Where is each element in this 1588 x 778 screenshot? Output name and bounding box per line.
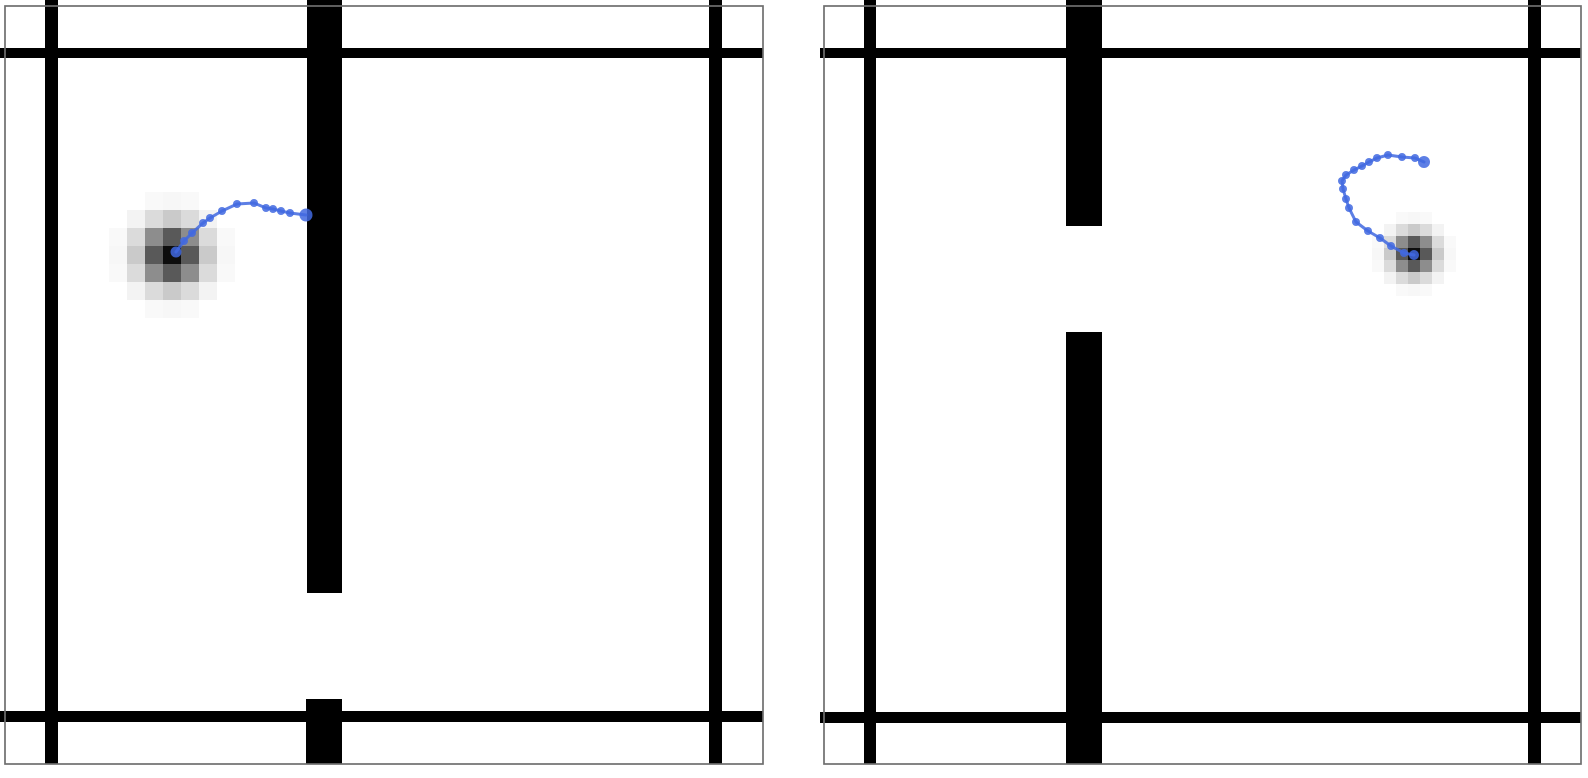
heat-cell [1420,248,1432,260]
maze-figure [0,0,1588,778]
right-wall [709,0,722,764]
trajectory-dot [269,205,277,213]
heat-cell [1444,248,1456,260]
heat-cell [1408,212,1420,224]
trajectory-dot [300,209,313,222]
trajectory-dot [180,237,188,245]
trajectory-dot [1418,156,1430,168]
heat-cell [109,264,127,282]
heat-cell [1420,236,1432,248]
heat-cell [145,282,163,300]
maze-panel-left-frame [5,6,763,764]
heat-cell [181,210,199,228]
heat-cell [1384,224,1396,236]
heat-cell [199,228,217,246]
trajectory-dot [1342,195,1350,203]
heat-cell [1444,236,1456,248]
heat-cell [163,228,181,246]
trajectory-dot [1350,166,1358,174]
trajectory-dot [218,207,226,215]
heat-cell [1396,212,1408,224]
trajectory-dot [1365,158,1373,166]
heat-cell [1408,272,1420,284]
trajectory-dot [1373,154,1381,162]
heat-cell [1408,224,1420,236]
heat-cell [1408,236,1420,248]
trajectory-dot [1338,177,1346,185]
heat-cell [127,246,145,264]
heat-cell [217,246,235,264]
top-wall [820,48,1581,58]
heat-cell [1432,236,1444,248]
heat-cell [1420,272,1432,284]
heat-cell [1396,236,1408,248]
heat-cell [199,246,217,264]
center-wall [307,0,342,593]
maze-panel-right [820,0,1581,764]
trajectory-dot [1339,185,1347,193]
heat-cell [181,264,199,282]
trajectory-dot [1411,154,1419,162]
heat-cell [1372,260,1384,272]
figure-svg [0,0,1588,778]
heat-cell [1432,248,1444,260]
heat-cell [181,300,199,318]
heat-cell [1372,248,1384,260]
trajectory-dot [1352,218,1360,226]
trajectory-dot [1345,204,1353,212]
center-wall-stub [306,699,342,764]
heat-cell [181,282,199,300]
heat-cell [145,228,163,246]
heat-cell [1384,260,1396,272]
heat-cell [217,228,235,246]
heat-cell [1396,272,1408,284]
heat-cell [1444,260,1456,272]
trajectory-dot [206,214,214,222]
heat-cell [1396,224,1408,236]
trajectory-dot [1398,153,1406,161]
heat-cell [163,282,181,300]
trajectory-dot [1384,151,1392,159]
heat-cell [163,264,181,282]
heat-cell [1408,284,1420,296]
heat-cell [1432,272,1444,284]
heat-cell [181,192,199,210]
trajectory-dot [1409,250,1419,260]
trajectory-dot [250,199,258,207]
heat-cell [145,300,163,318]
heat-cell [163,192,181,210]
heat-cell [109,228,127,246]
trajectory-dot [1387,242,1395,250]
trajectory-dot [277,207,285,215]
heat-cell [1432,224,1444,236]
trajectory-dot [1376,234,1384,242]
maze-panel-right-walls [820,0,1581,764]
heat-cell [1408,260,1420,272]
heat-cell [1420,224,1432,236]
heat-cell [217,264,235,282]
heat-cell [145,246,163,264]
heat-cell [145,264,163,282]
heat-cell [145,192,163,210]
top-wall [0,48,763,58]
bottom-wall [820,712,1581,723]
trajectory-dot [1364,227,1372,235]
left-wall [864,0,876,764]
heat-cell [127,264,145,282]
heat-cell [1396,260,1408,272]
bottom-wall [0,711,763,722]
heat-cell [1420,260,1432,272]
heat-cell [1432,260,1444,272]
trajectory-dot [1400,249,1408,257]
heat-cell [1420,284,1432,296]
heat-cell [181,246,199,264]
heat-cell [1384,272,1396,284]
heat-cell [1396,284,1408,296]
maze-panel-right-frame [824,6,1581,764]
heat-cell [127,210,145,228]
heat-cell [163,210,181,228]
heat-cell [199,282,217,300]
trajectory-dot [171,247,182,258]
trajectory-dot [199,219,207,227]
trajectory-dot [233,200,241,208]
maze-panel-left [0,0,763,764]
center-wall-top [1066,0,1102,226]
maze-panel-left-walls [0,0,763,764]
trajectory-dot [1358,162,1366,170]
trajectory-dot [286,209,294,217]
heat-cell [127,282,145,300]
heat-cell [127,228,145,246]
heat-cell [199,264,217,282]
heat-cell [109,246,127,264]
heat-cell [163,300,181,318]
center-wall-bottom [1066,332,1102,764]
heat-cell [145,210,163,228]
trajectory-dot [262,204,270,212]
trajectory-dot [188,229,196,237]
left-wall [45,0,58,764]
heat-cell [1420,212,1432,224]
right-wall [1528,0,1541,764]
